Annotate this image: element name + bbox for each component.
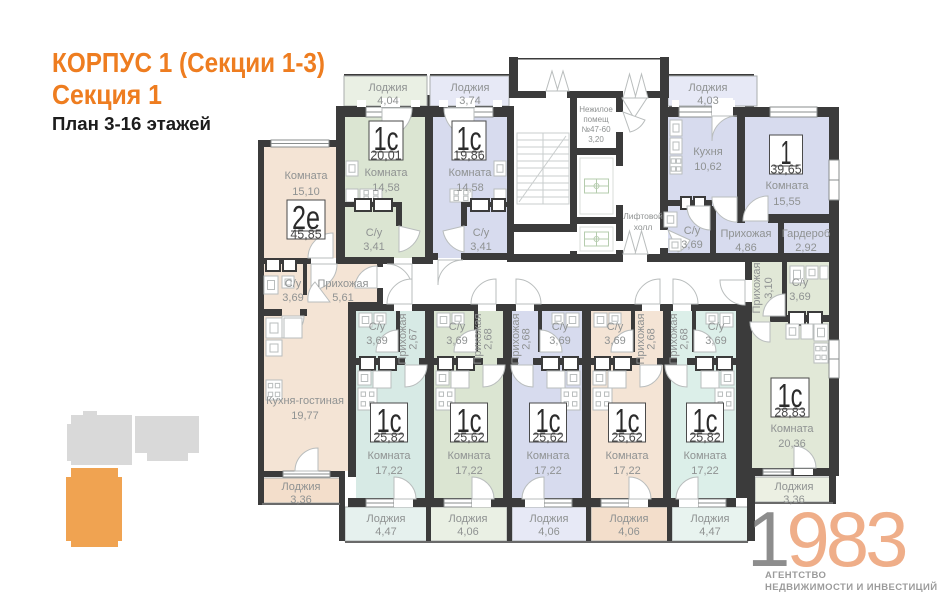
- svg-text:Лифтовой: Лифтовой: [623, 211, 663, 221]
- svg-text:17,22: 17,22: [375, 465, 403, 477]
- svg-text:Кухня-гостиная: Кухня-гостиная: [266, 395, 344, 407]
- svg-text:15,10: 15,10: [292, 186, 320, 198]
- svg-text:Лоджия: Лоджия: [689, 82, 728, 94]
- svg-text:Лоджия: Лоджия: [369, 82, 408, 94]
- svg-text:3,69: 3,69: [282, 292, 303, 304]
- svg-text:3,69: 3,69: [366, 335, 387, 347]
- svg-text:С/у: С/у: [449, 321, 466, 333]
- svg-text:С/у: С/у: [607, 321, 624, 333]
- svg-text:2,68: 2,68: [679, 328, 691, 349]
- svg-text:2,68: 2,68: [521, 328, 533, 349]
- svg-text:Комната: Комната: [448, 167, 492, 179]
- svg-text:4,06: 4,06: [538, 526, 559, 538]
- svg-text:холл: холл: [634, 222, 653, 232]
- svg-text:НЕДВИЖИМОСТИ И ИНВЕСТИЦИЙ: НЕДВИЖИМОСТИ И ИНВЕСТИЦИЙ: [765, 581, 937, 593]
- svg-text:15,55: 15,55: [773, 196, 801, 208]
- svg-text:Лоджия: Лоджия: [775, 481, 814, 493]
- svg-text:5,61: 5,61: [332, 292, 353, 304]
- svg-text:№47-60: №47-60: [581, 125, 611, 134]
- svg-text:КОРПУС 1 (Секции 1-3): КОРПУС 1 (Секции 1-3): [52, 47, 325, 78]
- svg-text:39,65: 39,65: [770, 163, 801, 177]
- svg-text:14,58: 14,58: [456, 182, 484, 194]
- svg-text:25,62: 25,62: [453, 431, 484, 445]
- svg-text:Лоджия: Лоджия: [530, 513, 569, 525]
- svg-text:4,04: 4,04: [377, 95, 398, 107]
- svg-text:Комната: Комната: [447, 450, 491, 462]
- svg-text:10,62: 10,62: [694, 161, 722, 173]
- svg-text:АГЕНТСТВО: АГЕНТСТВО: [765, 570, 826, 581]
- svg-text:С/у: С/у: [792, 277, 809, 289]
- svg-text:Комната: Комната: [364, 167, 408, 179]
- svg-text:3,69: 3,69: [789, 291, 810, 303]
- svg-text:25,82: 25,82: [689, 431, 720, 445]
- svg-text:3,36: 3,36: [290, 494, 311, 506]
- svg-text:20,36: 20,36: [778, 438, 806, 450]
- svg-text:Лоджия: Лоджия: [282, 481, 321, 493]
- svg-text:Комната: Комната: [765, 180, 809, 192]
- svg-text:С/у: С/у: [684, 225, 701, 237]
- svg-text:4,86: 4,86: [735, 242, 756, 254]
- svg-text:3,69: 3,69: [446, 335, 467, 347]
- svg-text:Комната: Комната: [605, 450, 649, 462]
- svg-text:Лоджия: Лоджия: [610, 513, 649, 525]
- svg-text:4,06: 4,06: [457, 526, 478, 538]
- svg-text:19,86: 19,86: [453, 149, 484, 163]
- svg-text:Лоджия: Лоджия: [691, 513, 730, 525]
- svg-text:помещ: помещ: [583, 115, 609, 124]
- svg-text:4,06: 4,06: [618, 526, 639, 538]
- svg-text:Нежилое: Нежилое: [579, 105, 613, 114]
- svg-text:Прихожая: Прихожая: [751, 262, 763, 313]
- svg-text:20,01: 20,01: [370, 149, 401, 163]
- svg-text:3,69: 3,69: [705, 335, 726, 347]
- svg-text:Прихожая: Прихожая: [721, 228, 772, 240]
- svg-text:С/у: С/у: [366, 227, 383, 239]
- svg-text:С/у: С/у: [285, 278, 302, 290]
- svg-text:25,82: 25,82: [373, 431, 404, 445]
- svg-text:С/у: С/у: [552, 321, 569, 333]
- svg-text:45,85: 45,85: [290, 228, 321, 242]
- svg-text:3,69: 3,69: [604, 335, 625, 347]
- svg-text:3,41: 3,41: [470, 241, 491, 253]
- svg-text:С/у: С/у: [473, 227, 490, 239]
- svg-text:2,92: 2,92: [795, 242, 816, 254]
- svg-text:28,83: 28,83: [774, 406, 805, 420]
- svg-text:3,20: 3,20: [588, 135, 604, 144]
- svg-text:19,77: 19,77: [291, 410, 319, 422]
- svg-text:Гардероб: Гардероб: [782, 228, 830, 240]
- svg-text:3,41: 3,41: [363, 241, 384, 253]
- svg-text:3,74: 3,74: [459, 95, 480, 107]
- svg-text:Лоджия: Лоджия: [451, 82, 490, 94]
- svg-text:3,69: 3,69: [549, 335, 570, 347]
- svg-text:14,58: 14,58: [372, 182, 400, 194]
- svg-text:4,47: 4,47: [699, 526, 720, 538]
- svg-text:2,67: 2,67: [408, 328, 420, 349]
- svg-text:17,22: 17,22: [691, 465, 719, 477]
- svg-text:17,22: 17,22: [455, 465, 483, 477]
- svg-text:Комната: Комната: [284, 170, 328, 182]
- svg-text:3,69: 3,69: [681, 239, 702, 251]
- svg-text:Лоджия: Лоджия: [449, 513, 488, 525]
- svg-text:4,03: 4,03: [697, 95, 718, 107]
- svg-text:С/у: С/у: [369, 321, 386, 333]
- svg-text:2,68: 2,68: [483, 328, 495, 349]
- svg-text:Лоджия: Лоджия: [367, 513, 406, 525]
- svg-text:Комната: Комната: [367, 450, 411, 462]
- svg-text:3,10: 3,10: [763, 277, 775, 298]
- svg-text:С/у: С/у: [708, 321, 725, 333]
- svg-text:4,47: 4,47: [375, 526, 396, 538]
- svg-text:Комната: Комната: [683, 450, 727, 462]
- svg-text:2,68: 2,68: [646, 328, 658, 349]
- svg-text:План 3-16 этажей: План 3-16 этажей: [52, 113, 211, 134]
- svg-text:Прихожая: Прихожая: [318, 278, 369, 290]
- svg-text:25,62: 25,62: [532, 431, 563, 445]
- svg-text:Секция 1: Секция 1: [52, 79, 162, 110]
- svg-text:25,62: 25,62: [611, 431, 642, 445]
- svg-text:Комната: Комната: [526, 450, 570, 462]
- svg-text:Кухня: Кухня: [693, 146, 722, 158]
- svg-text:Комната: Комната: [770, 423, 814, 435]
- svg-text:17,22: 17,22: [613, 465, 641, 477]
- svg-text:17,22: 17,22: [534, 465, 562, 477]
